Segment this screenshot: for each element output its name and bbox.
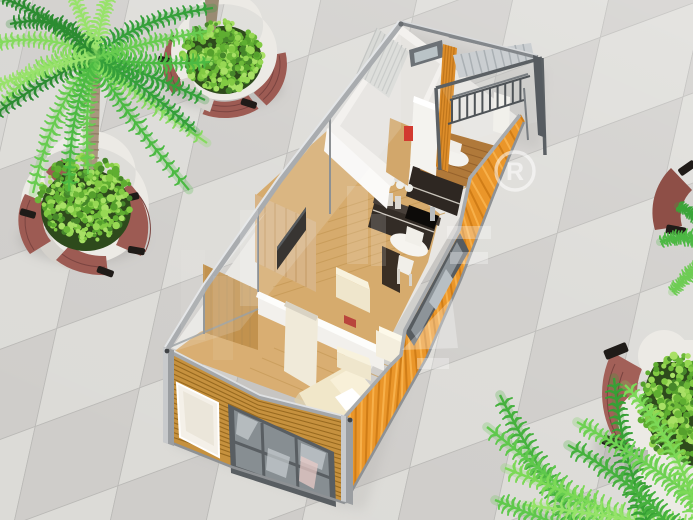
svg-text:R: R — [506, 158, 524, 186]
